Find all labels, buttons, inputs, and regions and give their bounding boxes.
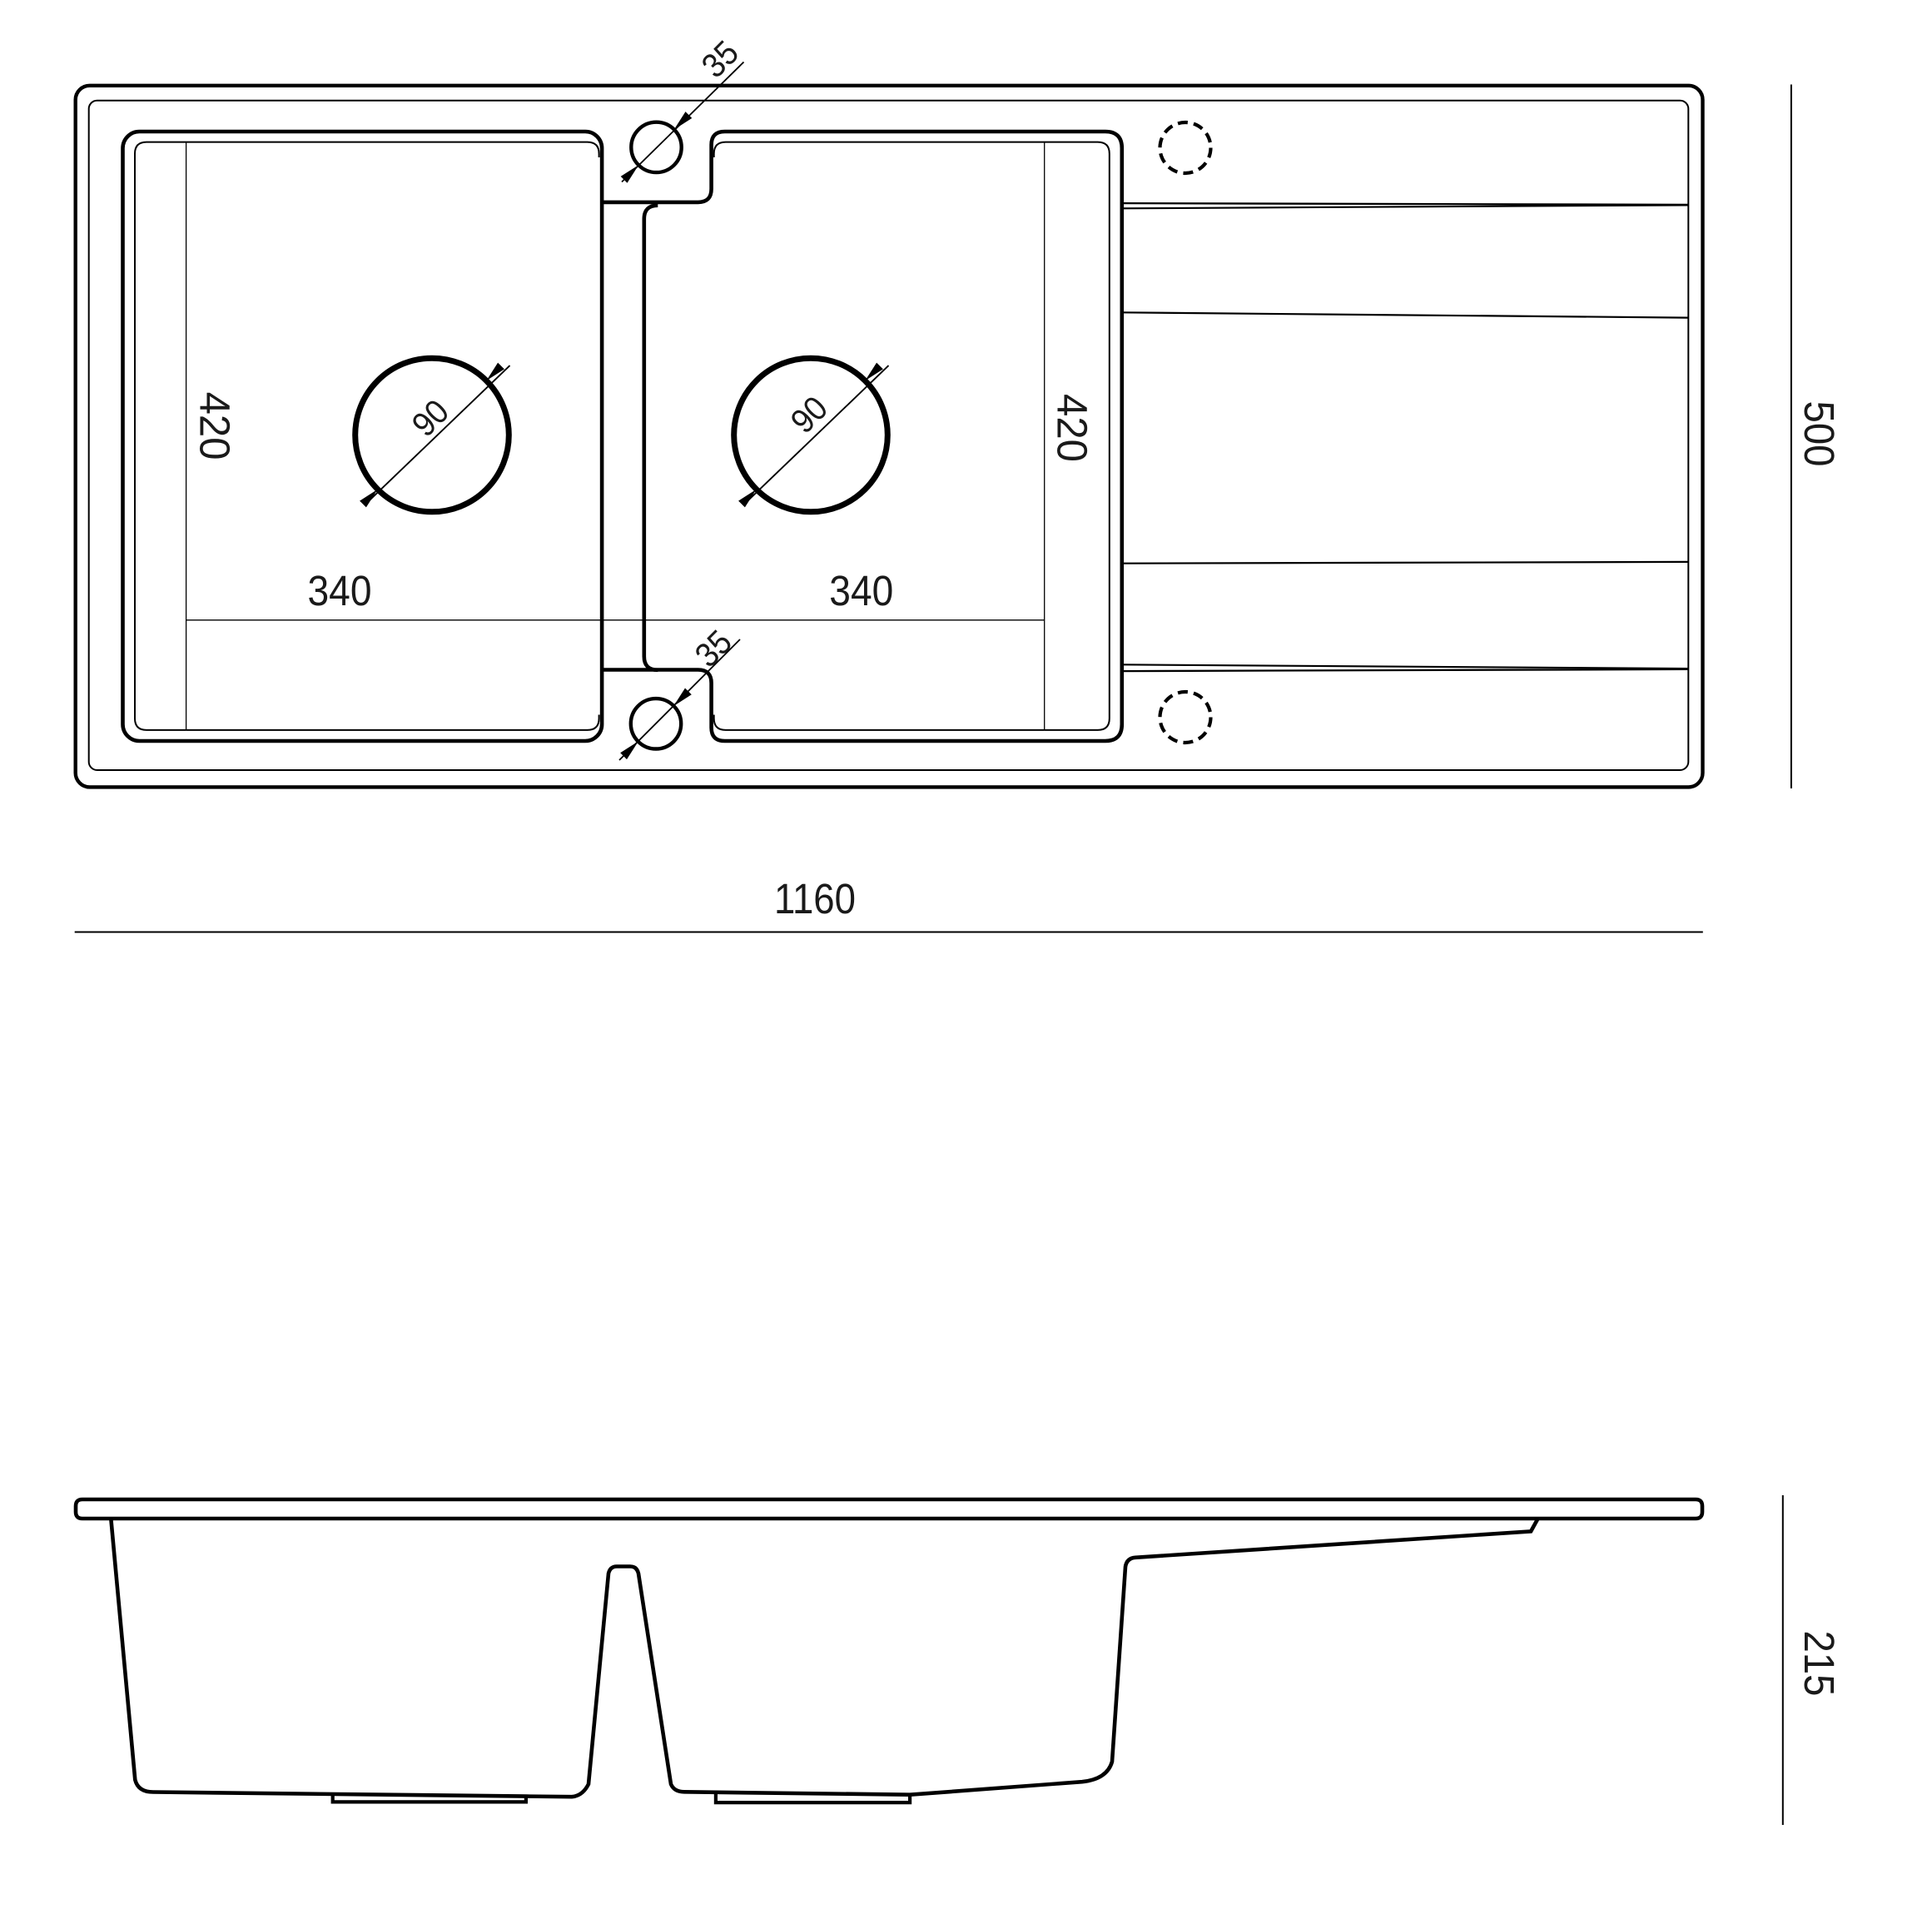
svg-text:420: 420 (1049, 394, 1096, 462)
svg-text:340: 340 (829, 567, 893, 614)
svg-text:1160: 1160 (774, 875, 856, 922)
svg-text:500: 500 (1795, 401, 1843, 467)
svg-text:420: 420 (191, 392, 239, 460)
svg-text:215: 215 (1795, 1631, 1843, 1697)
svg-text:340: 340 (308, 567, 372, 614)
